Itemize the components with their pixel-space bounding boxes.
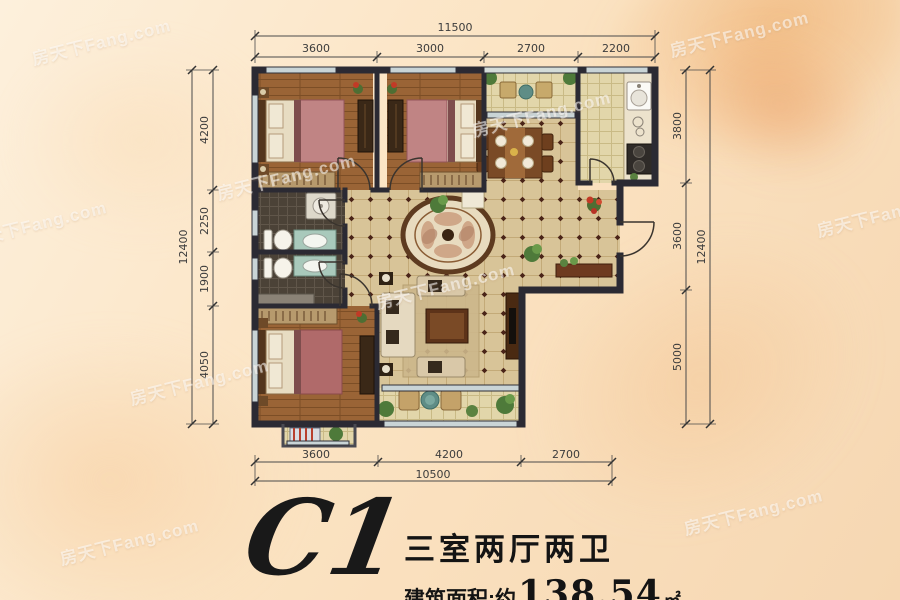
red-flower xyxy=(596,199,602,205)
balcony-table xyxy=(519,85,533,99)
plate xyxy=(523,158,534,169)
dim-label: 3600 xyxy=(671,222,684,250)
potted-plant xyxy=(466,405,478,417)
dim-label: 10500 xyxy=(416,468,451,481)
floorplan-page: 11500 3600 3000 2700 2200 3600 4200 2700… xyxy=(0,0,900,600)
center-bowl xyxy=(510,148,518,156)
window xyxy=(252,258,258,280)
dim-label: 3600 xyxy=(302,448,330,461)
bath-cabinet xyxy=(258,294,314,305)
dim-label: 5000 xyxy=(671,343,684,371)
dim-label: 4200 xyxy=(435,448,463,461)
bed-runner xyxy=(448,100,455,162)
lamp xyxy=(260,166,266,172)
planter-greens xyxy=(570,257,578,265)
dim-label: 3600 xyxy=(302,42,330,55)
pillow xyxy=(269,334,282,359)
window xyxy=(252,95,258,163)
planter-greens xyxy=(560,259,568,267)
balcony-chair xyxy=(399,390,419,410)
bed-blanket xyxy=(407,100,447,162)
dim-label: 4050 xyxy=(198,351,211,379)
area-label: 建筑面积:约 xyxy=(404,583,516,600)
sink-basin xyxy=(631,90,647,106)
plate xyxy=(496,158,507,169)
red-flower xyxy=(587,197,594,204)
dim-label: 4200 xyxy=(198,116,211,144)
plan-layout-text: 三室两厅两卫 xyxy=(404,524,681,569)
dim-top: 11500 3600 3000 2700 2200 xyxy=(251,21,659,63)
burner xyxy=(634,147,645,158)
pillow xyxy=(269,104,283,128)
dim-label: 3800 xyxy=(671,112,684,140)
sofa-pillow xyxy=(428,361,442,373)
red-flower xyxy=(591,208,597,214)
balcony-chair xyxy=(500,82,516,98)
coffee-table-top xyxy=(430,313,464,339)
bed-blanket xyxy=(300,100,344,162)
wall-flower xyxy=(391,82,397,88)
dresser xyxy=(360,336,374,394)
potted-plant xyxy=(532,244,542,254)
bed-blanket xyxy=(300,330,342,394)
balcony-table-top xyxy=(425,395,435,405)
plate xyxy=(523,136,534,147)
faucet xyxy=(637,84,641,88)
balcony-window xyxy=(484,67,578,73)
balcony-window xyxy=(287,441,349,445)
window xyxy=(586,67,648,73)
wall-flower xyxy=(353,82,359,88)
toilet xyxy=(274,258,292,278)
balcony-slider xyxy=(487,112,575,118)
kitchen-furniture xyxy=(624,73,654,181)
nightstand xyxy=(257,318,268,328)
dim-label: 2200 xyxy=(602,42,630,55)
window xyxy=(390,67,456,73)
area-value: 138.54 xyxy=(518,573,662,600)
balcony-window xyxy=(384,421,517,427)
dining-chair xyxy=(542,134,553,150)
dim-label: 12400 xyxy=(177,230,190,265)
plate xyxy=(496,136,507,147)
dim-label: 11500 xyxy=(438,21,473,34)
table-lamp xyxy=(382,274,390,282)
toilet-tank xyxy=(264,258,272,278)
dim-label: 3000 xyxy=(416,42,444,55)
dim-left: 12400 4200 2250 1900 4050 xyxy=(177,66,219,428)
potted-plant xyxy=(378,401,394,417)
sofa-pillow xyxy=(428,280,442,292)
sink-basin xyxy=(303,234,327,248)
dim-label: 2700 xyxy=(552,448,580,461)
plan-title-block: 三室两厅两卫 建筑面积:约 138.54 ㎡ xyxy=(404,524,681,600)
window xyxy=(266,67,336,73)
window xyxy=(252,210,258,236)
entry-door xyxy=(620,222,654,256)
potted-plant xyxy=(438,195,448,205)
sofa-pillow xyxy=(386,300,399,314)
window xyxy=(252,330,258,402)
red-flower xyxy=(356,311,362,317)
plan-area-line: 建筑面积:约 138.54 ㎡ xyxy=(404,573,681,600)
area-unit: ㎡ xyxy=(664,586,681,600)
floor-plan-drawing: 11500 3600 3000 2700 2200 3600 4200 2700… xyxy=(0,0,900,600)
master-balcony-furniture xyxy=(290,427,343,441)
lamp xyxy=(260,89,266,95)
nightstand xyxy=(257,396,268,406)
dim-label: 1900 xyxy=(198,265,211,293)
balcony-chair xyxy=(441,390,461,410)
pillow xyxy=(269,363,282,388)
balcony-chair xyxy=(536,82,552,98)
dining-set xyxy=(477,128,553,178)
potted-plant xyxy=(505,394,515,404)
potted-plant xyxy=(329,427,343,441)
burner xyxy=(634,161,645,172)
dim-right: 3800 3600 5000 12400 xyxy=(671,66,716,428)
pillow xyxy=(461,104,474,128)
table-lamp xyxy=(382,365,390,373)
floor-medallion xyxy=(403,198,493,272)
plan-code: C1 xyxy=(236,488,415,598)
tv xyxy=(509,308,516,344)
bed-runner xyxy=(294,100,301,162)
dining-chair xyxy=(542,156,553,172)
entry-cabinet xyxy=(462,192,484,208)
toilet xyxy=(274,230,292,250)
dim-label: 2700 xyxy=(517,42,545,55)
balcony-slider xyxy=(382,385,519,391)
toilet-tank xyxy=(264,230,272,250)
dim-label: 12400 xyxy=(695,230,708,265)
bed-runner xyxy=(294,330,301,394)
sofa-pillow xyxy=(386,330,399,344)
dim-label: 2250 xyxy=(198,207,211,235)
pillow xyxy=(461,134,474,158)
pillow xyxy=(269,134,283,158)
